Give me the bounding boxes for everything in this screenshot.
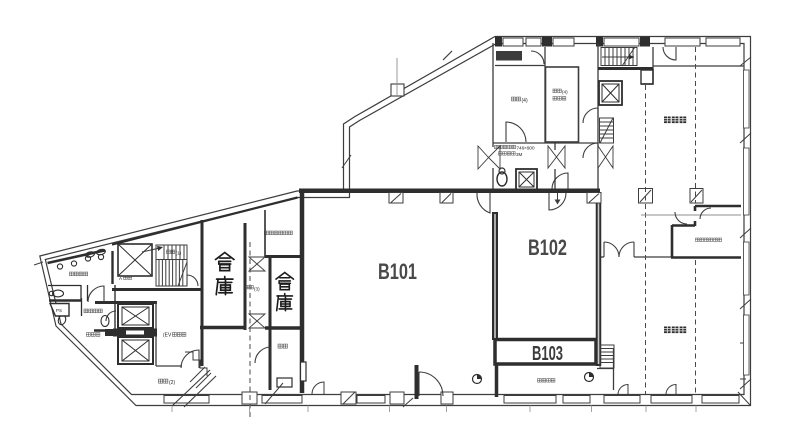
svg-text:B102: B102 bbox=[528, 235, 567, 260]
svg-text:(3): (3) bbox=[254, 287, 260, 292]
svg-text:B103: B103 bbox=[532, 343, 563, 365]
svg-text:(1): (1) bbox=[176, 251, 182, 256]
svg-text:(4): (4) bbox=[522, 98, 528, 104]
svg-text:B101: B101 bbox=[378, 259, 417, 284]
svg-text:3M: 3M bbox=[516, 152, 523, 157]
svg-text:(2): (2) bbox=[169, 380, 175, 386]
svg-text:(EV: (EV bbox=[163, 333, 172, 339]
svg-text:746×900: 746×900 bbox=[517, 146, 535, 151]
svg-text:(4): (4) bbox=[562, 90, 568, 95]
svg-text:PS: PS bbox=[56, 308, 62, 313]
